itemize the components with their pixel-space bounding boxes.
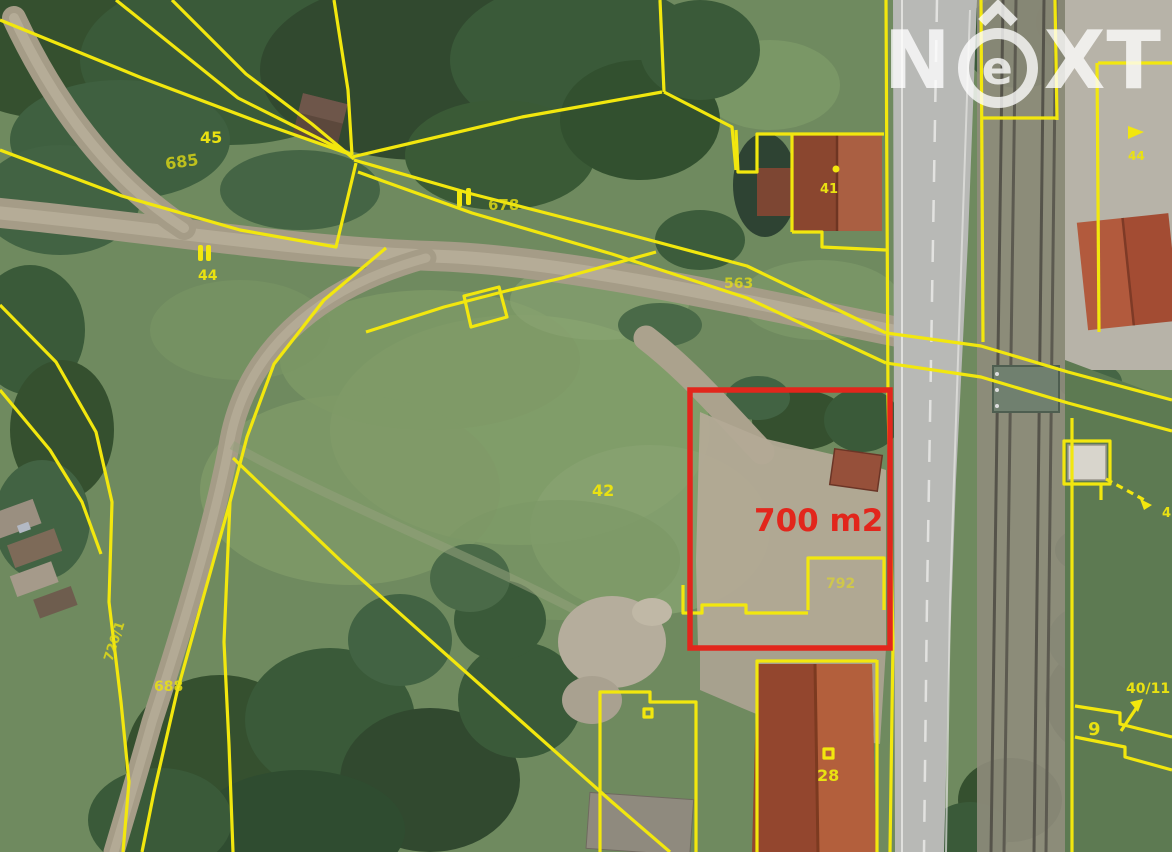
logo-letter-e: e — [982, 45, 1014, 91]
building-white-shed — [1068, 445, 1106, 480]
building-shed — [830, 449, 883, 491]
parcel-label-563: 563 — [724, 276, 753, 292]
aerial-map: 45 685 678 44 563 42 720/1 688 41 792 28… — [0, 0, 1172, 852]
parcel-label-44-top-right: 44 — [1128, 149, 1145, 163]
railway — [977, 0, 1067, 852]
area-label: 700 m2 — [754, 503, 883, 539]
logo-letters-xt: XT — [1044, 21, 1162, 101]
parcel-label-42: 42 — [592, 481, 614, 500]
building-far-right — [1077, 213, 1172, 330]
parcel-label-45: 45 — [200, 128, 222, 147]
aerial-imagery — [0, 0, 1172, 852]
double-bar-symbol — [457, 190, 462, 207]
parcel-label-28: 28 — [817, 766, 839, 785]
parcel-label-792: 792 — [826, 576, 855, 592]
map-image: 45 685 678 44 563 42 720/1 688 41 792 28… — [0, 0, 1172, 852]
parcel-label-40-11: 40/11 — [1126, 681, 1170, 697]
parcel-label-4-clipped: 4 — [1162, 506, 1171, 521]
parcel-label-688: 688 — [154, 679, 183, 695]
parcel-label-41: 41 — [820, 182, 838, 197]
building-barn — [586, 792, 694, 852]
parcel-label-9: 9 — [1088, 719, 1101, 740]
parcel-label-44: 44 — [198, 268, 218, 284]
boundary-dot — [833, 166, 840, 173]
logo-e-ring: e — [958, 28, 1038, 108]
logo-letter-n: N — [884, 21, 952, 101]
building-bottom-house — [752, 664, 876, 852]
parcel-label-678: 678 — [488, 196, 519, 214]
next-logo-watermark: N e XT — [884, 14, 1162, 108]
double-bar-symbol — [198, 245, 203, 261]
